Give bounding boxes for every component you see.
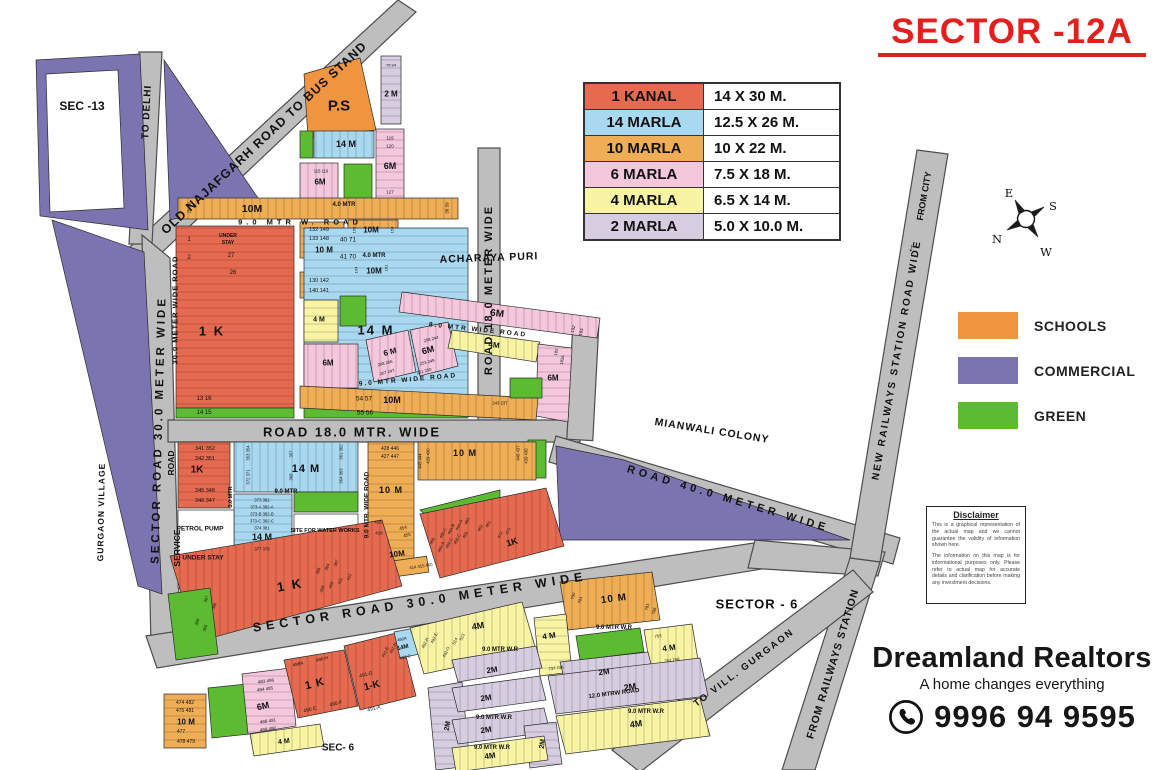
map-label: 427 447 [381, 454, 399, 460]
map-label: 10M [242, 203, 263, 215]
map-label: 6M [322, 359, 333, 368]
map-label: 2M [598, 667, 611, 678]
map-label: 30.0 METER WIDE ROAD [171, 256, 180, 365]
map-label: SECTOR - 6 [716, 597, 799, 612]
map-shape [510, 378, 542, 398]
page-title: SECTOR -12A [878, 12, 1146, 57]
map-shape [1031, 207, 1044, 217]
map-label: 4.0 MTR [332, 202, 356, 208]
disclaimer-title: Disclaimer [932, 510, 1020, 520]
map-label: 10 M [379, 485, 403, 495]
legend-item: COMMERCIAL [958, 357, 1135, 384]
map-label: 133 148 [309, 236, 329, 242]
map-label: 1K [191, 465, 205, 476]
sector-map-page: OLD NAJAFGARH ROAD TO BUS STANDTO DELHIS… [0, 0, 1170, 770]
map-label: 243 237 [492, 401, 508, 406]
map-label: MIANWALI COLONY [654, 416, 770, 446]
size-table-row: 4 MARLA6.5 X 14 M. [584, 188, 840, 214]
map-label: 368 [289, 473, 294, 481]
plot-type-cell: 6 MARLA [584, 162, 704, 188]
map-shape [1015, 200, 1025, 214]
legend-label: COMMERCIAL [1034, 363, 1135, 379]
map-shape [1007, 220, 1021, 230]
plot-size-cell: 7.5 X 18 M. [704, 162, 841, 188]
map-label: 4M [471, 620, 485, 632]
map-shape [300, 131, 313, 158]
brand-name: Dreamland Realtors [866, 642, 1158, 675]
map-label: 478 479 [177, 739, 195, 745]
legend-label: SCHOOLS [1034, 318, 1107, 334]
map-label: 477 [177, 729, 186, 735]
map-label: GURGAON VILLAGE [95, 463, 107, 562]
map-label: 10M [363, 226, 379, 235]
map-label: E [1005, 186, 1013, 200]
map-label: PETROL PUMP [177, 526, 224, 533]
map-shape-hatch [176, 226, 294, 408]
map-label: 346 347 [195, 498, 215, 504]
disclaimer-paragraph-1: This is a graphical representation of th… [932, 522, 1020, 549]
disclaimer-paragraph-2: The information on this map is for infor… [932, 553, 1020, 587]
map-label: 40 71 [340, 237, 357, 244]
phone-icon [888, 699, 924, 735]
map-label: 429 430 [426, 448, 431, 464]
map-label: 6M [547, 374, 558, 383]
legend-swatch [958, 357, 1018, 384]
map-label: 342 351 [195, 456, 215, 462]
map-shape [46, 70, 124, 212]
map-shape [340, 296, 366, 326]
map-label: 38 39 [445, 202, 450, 214]
map-label: ROAD 18.0 MTR. WIDE [263, 425, 441, 440]
map-label: 14 M [336, 139, 356, 149]
map-label: 20 29 [187, 202, 192, 214]
map-label: 9.0 MTR W.R [476, 715, 513, 721]
map-shape [176, 408, 294, 418]
map-label: S [1049, 199, 1057, 213]
map-label: 10M [366, 267, 382, 276]
map-label: 130 142 [309, 278, 329, 284]
map-label: 10 M [177, 718, 195, 727]
map-label: 4 M [662, 643, 677, 654]
map-label: UNDER [219, 233, 237, 239]
map-label: ROAD 18.0 METER WIDE [483, 205, 495, 375]
brand-tagline: A home changes everything [866, 676, 1158, 693]
map-label: 377 378 [254, 547, 270, 552]
map-label: SEC -13 [59, 99, 105, 113]
plot-size-cell: 14 X 30 M. [704, 83, 841, 110]
map-label: 4M [488, 340, 500, 350]
map-label: 9.0 MTR [274, 489, 298, 495]
map-label: 9.0 MTR W.R [628, 709, 665, 715]
map-label: 372 371 [246, 469, 251, 485]
map-label: STAY [222, 240, 235, 246]
size-table-row: 6 MARLA7.5 X 18 M. [584, 162, 840, 188]
size-table-row: 14 MARLA12.5 X 26 M. [584, 110, 840, 136]
map-label: 2 M [384, 90, 398, 99]
map-label: 341 352 [195, 446, 215, 452]
map-label: 14 15 [196, 410, 212, 416]
map-label: 140 141 [309, 288, 329, 294]
plot-type-cell: 4 MARLA [584, 188, 704, 214]
map-label: 4.0 MTR [362, 253, 386, 259]
plot-size-cell: 6.5 X 14 M. [704, 188, 841, 214]
map-label: 6M [314, 178, 325, 187]
map-label: 6M [489, 308, 504, 321]
plot-size-cell: 5.0 X 10.0 M. [704, 214, 841, 241]
map-label: 54 57 [356, 396, 373, 403]
map-label: 2M [623, 681, 637, 693]
map-label: 154 [390, 226, 395, 233]
plot-size-cell: 10 X 22 M. [704, 136, 841, 162]
map-label: 374 381 [254, 526, 270, 531]
map-label: TO VILL. GURGAON [692, 627, 797, 710]
plot-size-legend-table: 1 KANAL14 X 30 M.14 MARLA12.5 X 26 M.10 … [583, 82, 841, 241]
map-label: 345 348 [195, 488, 215, 494]
map-label: ← [903, 242, 917, 255]
map-label: W [1040, 245, 1052, 259]
map-label: 474 482 [176, 700, 194, 706]
legend-label: GREEN [1034, 408, 1086, 424]
map-label: 6M [384, 161, 397, 171]
size-table-row: 2 MARLA5.0 X 10.0 M. [584, 214, 840, 241]
map-label: 361 362 [339, 444, 344, 460]
brand-block: Dreamland Realtors A home changes everyt… [866, 642, 1158, 735]
legend-item: SCHOOLS [958, 312, 1135, 339]
plot-type-cell: 2 MARLA [584, 214, 704, 241]
plot-size-cell: 12.5 X 26 M. [704, 110, 841, 136]
map-label: 14 M [292, 463, 320, 475]
map-label: 373-C 382-C [250, 519, 274, 524]
size-table-row: 10 MARLA10 X 22 M. [584, 136, 840, 162]
map-label: 27 [228, 253, 235, 259]
map-label: P.S [328, 98, 350, 115]
map-label: 9.0 MTR W. ROAD [238, 218, 362, 227]
map-label: 127 [386, 190, 394, 195]
map-label: 10 M [315, 246, 333, 255]
map-label: 4M [484, 751, 497, 762]
map-label: N [992, 232, 1002, 246]
map-label: 428 446 [381, 446, 399, 452]
map-label: 9.0 MTR W.R [482, 647, 519, 653]
map-label: 120 [386, 144, 394, 149]
map-label: 41 70 [340, 254, 357, 261]
map-label: 439 438 [524, 448, 529, 464]
map-label: UNDER STAY [182, 555, 224, 562]
map-shape-hatch [178, 198, 458, 219]
map-label: 4 M [313, 317, 325, 324]
brand-phone-row: 9996 94 9595 [866, 699, 1158, 735]
legend-swatch [958, 312, 1018, 339]
map-label: 10M [383, 395, 401, 405]
map-label: 9.0 MTR. WIDE ROAD [364, 471, 371, 538]
map-label: 373-B 382-B [250, 512, 274, 517]
map-label: SEC- 6 [322, 743, 355, 754]
map-label: 164 [354, 266, 359, 273]
legend-swatch [958, 402, 1018, 429]
map-label: 364 363 [339, 468, 344, 484]
map-label: 9.0 MTR W.R [596, 625, 633, 631]
map-label: 75 94 [386, 63, 397, 68]
map-label: 426 [374, 520, 382, 525]
map-label: 448 437 [516, 445, 521, 461]
map-label: 9.0 MTR W.R [474, 745, 511, 751]
map-label: 132 149 [309, 227, 329, 233]
map-label: 14 M [358, 323, 395, 338]
map-label: 357 [289, 450, 294, 458]
map-label: SERVICE [172, 529, 182, 566]
map-label: 373-A 382-A [250, 505, 273, 510]
map-label: 13 16 [196, 396, 212, 402]
plot-type-cell: 1 KANAL [584, 83, 704, 110]
map-label: 14 M [252, 532, 272, 542]
map-label: 115 116 [314, 169, 329, 174]
map-label: ROAD [166, 450, 176, 475]
map-label: 2M [480, 693, 493, 704]
map-label: 373 382 [254, 498, 270, 503]
map-label: 445 444 [418, 453, 423, 469]
plot-type-cell: 10 MARLA [584, 136, 704, 162]
map-label: 150 [352, 226, 357, 233]
size-table-row: 1 KANAL14 X 30 M. [584, 83, 840, 110]
legend-item: GREEN [958, 402, 1135, 429]
map-label: 353 354 [246, 445, 251, 461]
map-label: 475 481 [176, 708, 194, 714]
map-label: SITE FOR WATER WORKS [291, 528, 360, 534]
map-label: 2M [486, 665, 499, 676]
map-label: 4 M [542, 631, 557, 642]
map-label: 119 [386, 136, 394, 141]
brand-phone-number: 9996 94 9595 [934, 699, 1136, 735]
map-shape [294, 492, 358, 512]
disclaimer-box: Disclaimer This is a graphical represent… [926, 506, 1026, 604]
map-label: 10 M [453, 448, 477, 458]
map-label: 2M [480, 725, 493, 736]
map-label: 1 K [199, 324, 225, 339]
map-label: 26 [230, 270, 237, 276]
color-legend: SCHOOLSCOMMERCIALGREEN [958, 312, 1135, 429]
map-label: ACHARAYA PURI [439, 250, 538, 265]
map-label: 161 [384, 264, 389, 271]
map-shape [52, 220, 162, 594]
map-label: 55 56 [357, 410, 374, 417]
map-label: 4M [629, 718, 643, 730]
map-label: 753 [654, 633, 662, 639]
map-label: 418 [375, 531, 383, 536]
map-label: 3.0 MTR [228, 486, 234, 507]
plot-type-cell: 14 MARLA [584, 110, 704, 136]
